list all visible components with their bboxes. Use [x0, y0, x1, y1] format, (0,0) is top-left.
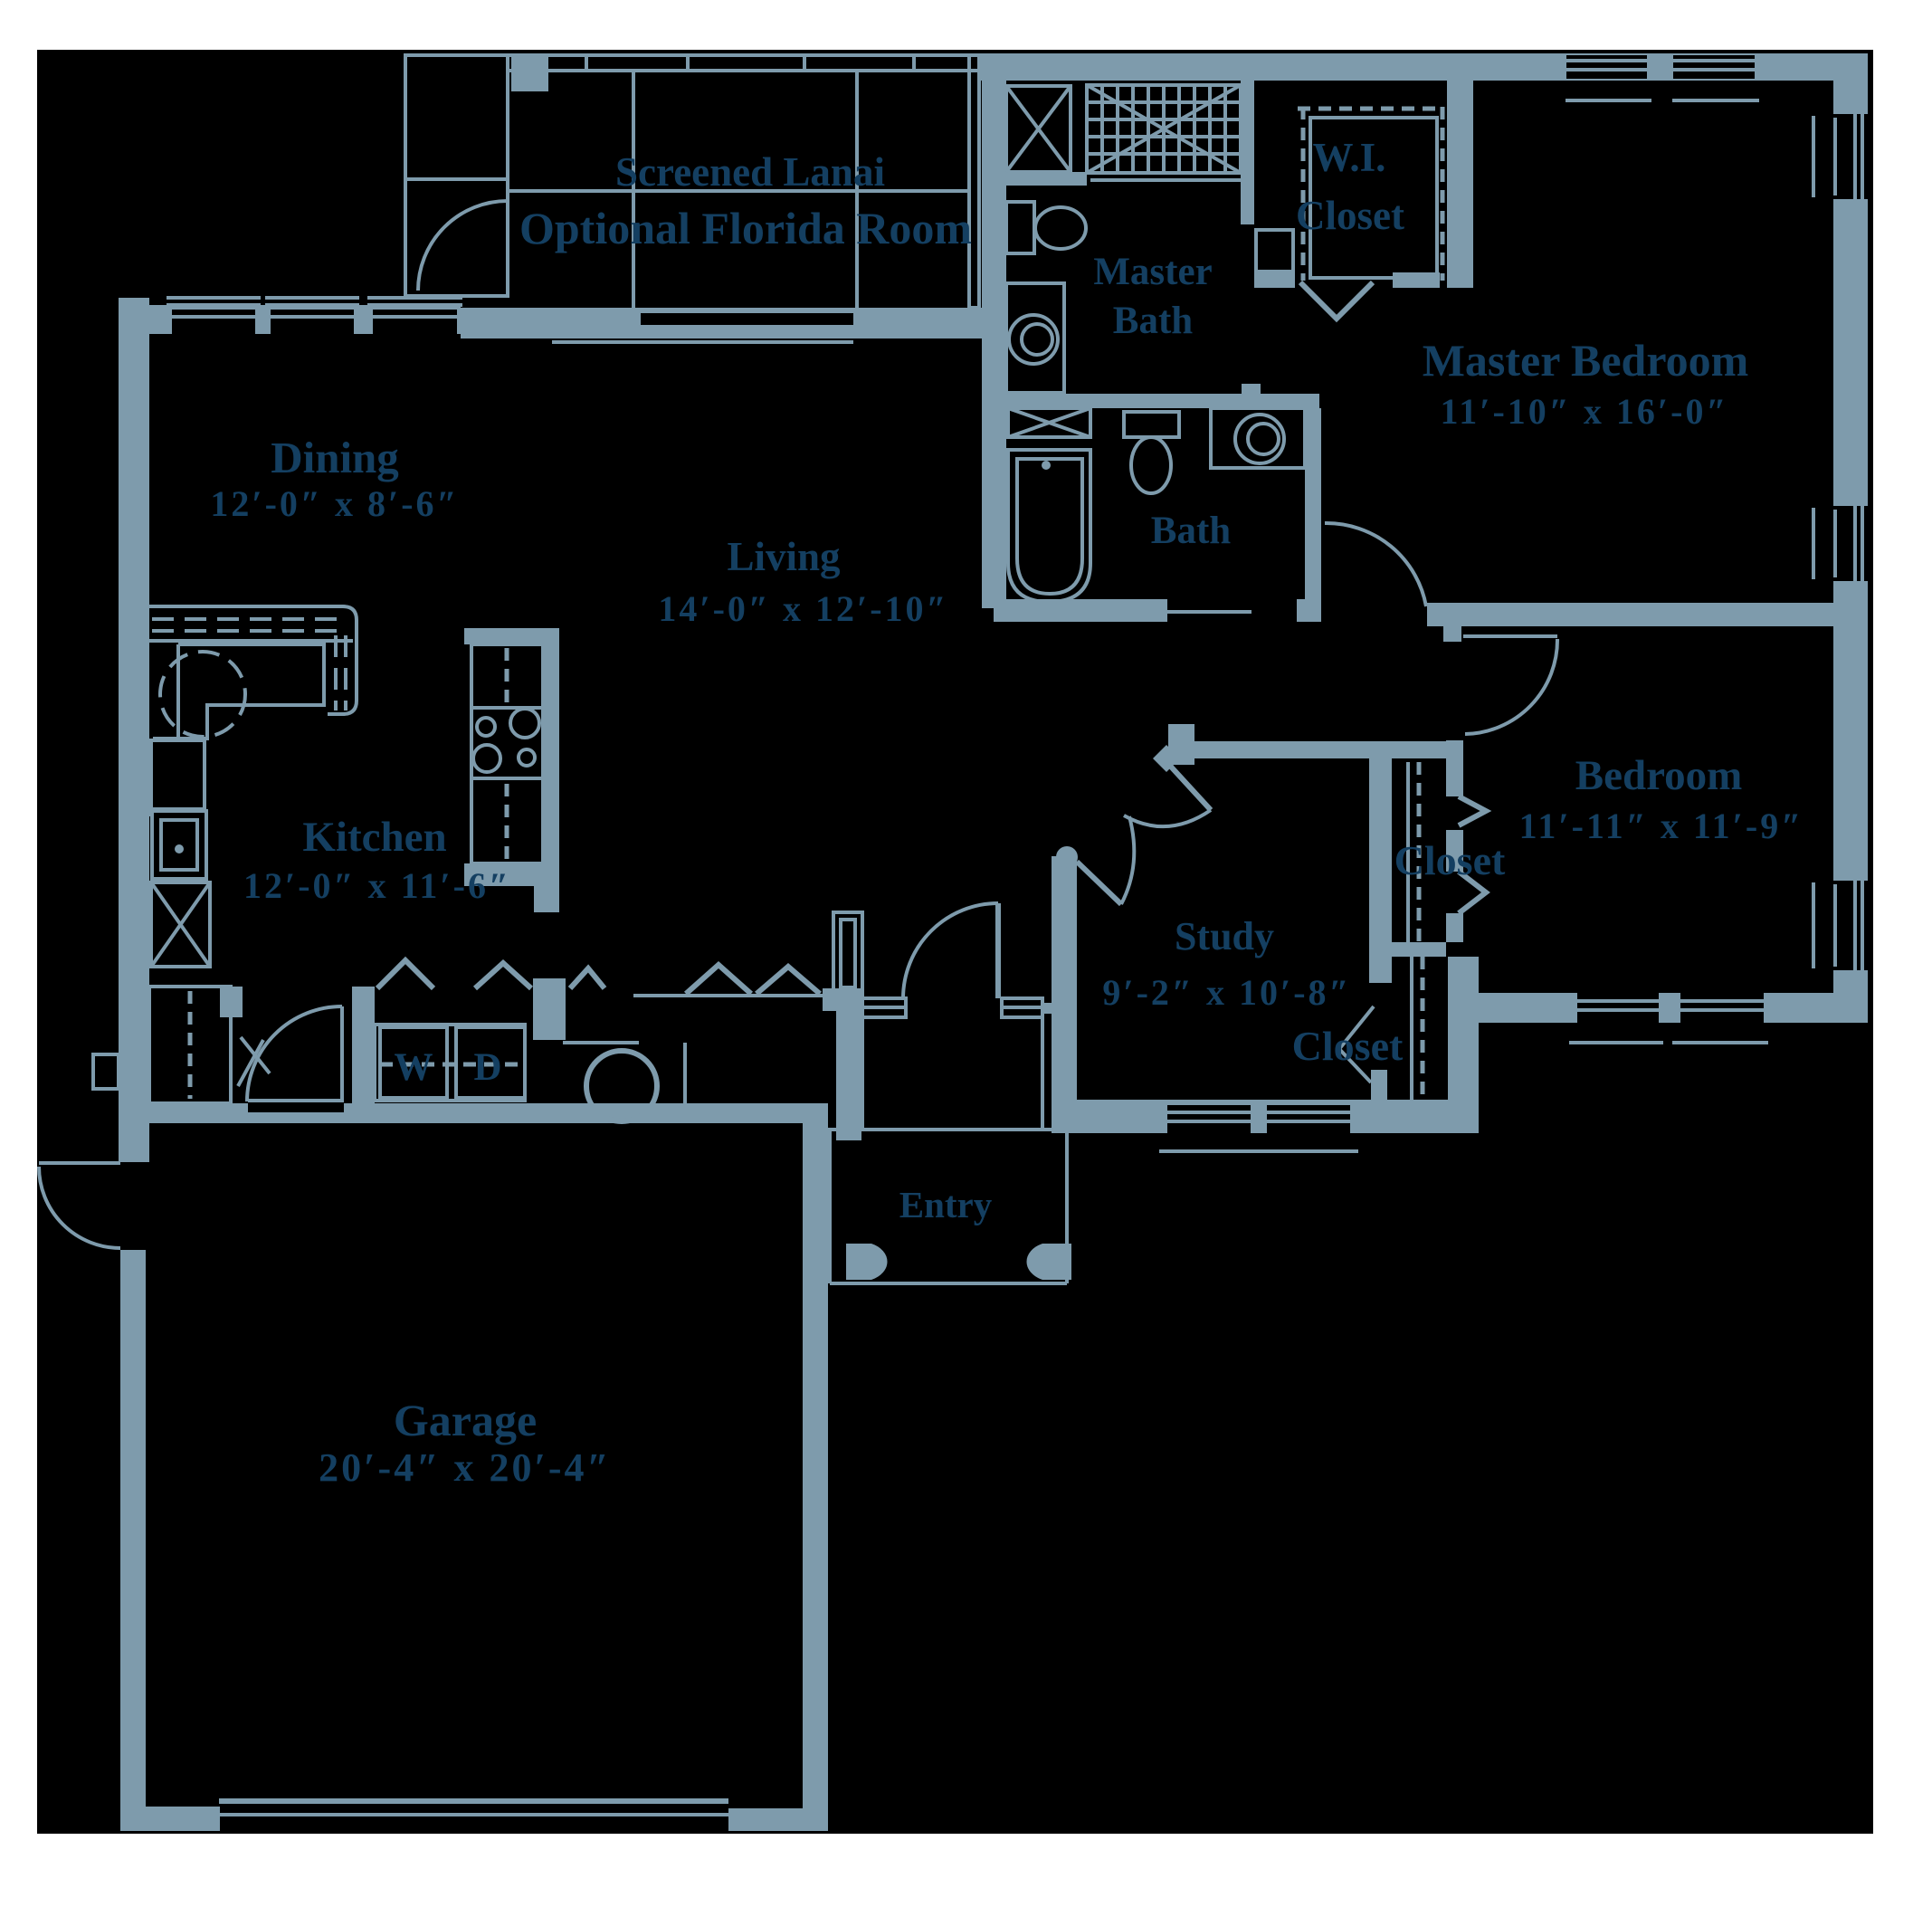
svg-text:14′-0″ x 12′-10″: 14′-0″ x 12′-10″: [658, 588, 948, 629]
svg-text:Entry: Entry: [899, 1184, 993, 1225]
svg-text:Optional Florida Room: Optional Florida Room: [519, 203, 972, 253]
svg-text:Living: Living: [727, 534, 841, 579]
svg-text:9′-2″ x 10′-8″: 9′-2″ x 10′-8″: [1102, 972, 1351, 1013]
svg-text:W.I.: W.I.: [1313, 135, 1386, 180]
svg-text:Garage: Garage: [394, 1395, 537, 1445]
svg-text:Bedroom: Bedroom: [1575, 752, 1743, 799]
svg-text:Master: Master: [1093, 251, 1212, 293]
svg-text:Kitchen: Kitchen: [302, 814, 446, 861]
svg-text:Master Bedroom: Master Bedroom: [1423, 335, 1749, 386]
svg-text:Bath: Bath: [1151, 510, 1232, 552]
svg-text:W: W: [395, 1046, 433, 1089]
svg-text:Screened Lanai: Screened Lanai: [615, 149, 885, 195]
svg-text:Bath: Bath: [1113, 300, 1194, 342]
svg-text:12′-0″ x 11′-6″: 12′-0″ x 11′-6″: [243, 865, 511, 906]
svg-text:Closet: Closet: [1296, 193, 1404, 238]
svg-text:D: D: [473, 1046, 501, 1089]
svg-text:20′-4″ x 20′-4″: 20′-4″ x 20′-4″: [319, 1445, 612, 1490]
svg-text:11′-10″ x 16′-0″: 11′-10″ x 16′-0″: [1440, 391, 1728, 432]
svg-text:12′-0″ x 8′-6″: 12′-0″ x 8′-6″: [210, 483, 459, 524]
svg-text:Study: Study: [1175, 914, 1274, 958]
svg-text:Dining: Dining: [271, 433, 399, 482]
svg-text:Closet: Closet: [1292, 1023, 1404, 1069]
svg-text:Closet: Closet: [1394, 837, 1506, 883]
svg-text:11′-11″ x 11′-9″: 11′-11″ x 11′-9″: [1519, 806, 1804, 846]
